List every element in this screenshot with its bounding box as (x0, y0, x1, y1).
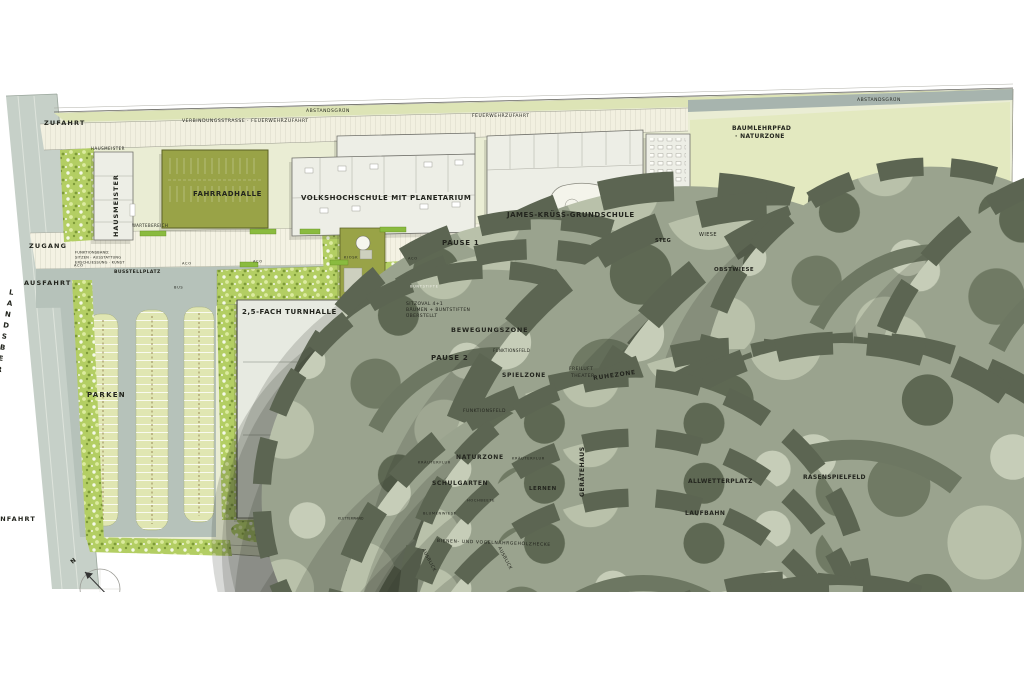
planter (240, 262, 258, 267)
planter (380, 227, 406, 232)
fahrradhalle-building (162, 150, 268, 228)
planter (250, 229, 276, 234)
scan-margin (0, 592, 1024, 684)
planetarium-circle (356, 236, 370, 250)
plan-canvas (0, 0, 1024, 684)
site-plan: ZUFAHRT VERBINDUNGSSTRASSE · FEUERWEHRZU… (0, 0, 1024, 684)
hausmeister-building (94, 152, 133, 240)
planter (140, 231, 166, 236)
planter (330, 260, 348, 265)
volkshochschule-building (292, 154, 475, 236)
parking-rows (88, 307, 214, 530)
planter (300, 229, 320, 234)
